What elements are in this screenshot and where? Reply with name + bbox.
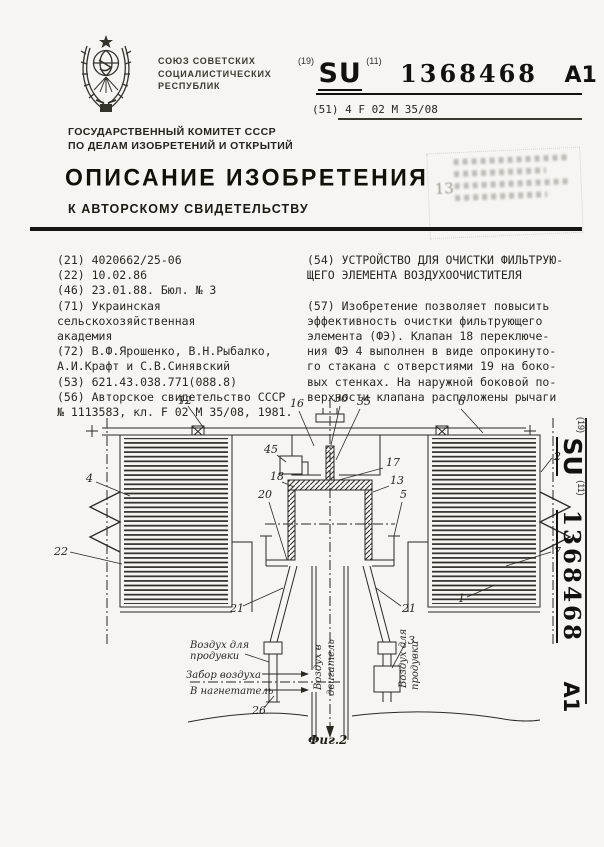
part-label-4: 4 (85, 472, 93, 485)
annotation-engine-air-1: Воздух в (313, 644, 324, 691)
annotation-right-blow-2: продувки (410, 641, 421, 690)
stamp-smudge-line (454, 167, 546, 177)
stamp-smudge-line (453, 154, 569, 165)
ussr-emblem (74, 32, 138, 120)
country-code-label: (19) (298, 56, 314, 66)
spring-left (90, 492, 120, 552)
kind-code: A1 (564, 63, 596, 88)
annotation-intake: Забор воздуха (186, 670, 261, 681)
kind-code: A1 (559, 682, 583, 713)
part-label-12: 12 (178, 394, 192, 407)
annotation-blow-air-2: продувки (190, 651, 239, 662)
part-label-6: 6 (458, 395, 465, 408)
ipc-underline (338, 118, 582, 120)
filter-element-left (120, 435, 252, 612)
publication-number-top: (19) SU (11) 1368468 A1 (298, 56, 597, 89)
patent-figure: 12 16 36 35 6 2 4 45 17 18 20 13 5 22 7 … (40, 390, 580, 760)
figure-caption: Фиг.2 (308, 733, 347, 747)
publication-number-side: (19) SU (11) 1368468 A1 (553, 417, 587, 717)
page-trim-line (585, 418, 587, 704)
part-label-21-left: 21 (229, 602, 244, 615)
doc-number: 1368468 (556, 510, 585, 643)
patent-page: СОЮЗ СОВЕТСКИХ СОЦИАЛИСТИЧЕСКИХ РЕСПУБЛИ… (0, 0, 604, 847)
part-label-36: 36 (334, 392, 348, 405)
country-code: SU (556, 437, 587, 475)
doc-number-label: (11) (366, 56, 381, 66)
part-label-45: 45 (263, 443, 278, 456)
filter-element-right (408, 435, 540, 612)
part-label-22: 22 (53, 545, 68, 558)
doc-number: 1368468 (400, 59, 538, 88)
union-name: СОЮЗ СОВЕТСКИХ СОЦИАЛИСТИЧЕСКИХ РЕСПУБЛИ… (158, 55, 272, 93)
document-title: ОПИСАНИЕ ИЗОБРЕТЕНИЯ (65, 163, 428, 191)
annotation-blow-air-1: Воздух для (189, 640, 249, 651)
document-subtitle: К АВТОРСКОМУ СВИДЕТЕЛЬСТВУ (68, 202, 309, 216)
annotation-engine-air-2: двигатель (326, 639, 337, 696)
biblio-right-column: (54) УСТРОЙСТВО ДЛЯ ОЧИСТКИ ФИЛЬТРУЮ- ЩЕ… (307, 253, 569, 405)
part-label-1: 1 (458, 592, 465, 605)
stamp-number: 13 (434, 179, 454, 198)
header-rule (30, 227, 582, 231)
stamp-smudge-line (455, 191, 547, 201)
library-stamp: 13 (426, 147, 584, 240)
part-label-21-right: 21 (401, 602, 416, 615)
country-code: SU (318, 58, 361, 91)
pub-underline (316, 93, 582, 95)
part-label-18: 18 (270, 470, 284, 483)
part-label-35: 35 (357, 395, 371, 408)
part-label-20: 20 (257, 488, 272, 501)
part-label-17: 17 (386, 456, 400, 469)
stamp-smudge-line (455, 178, 571, 189)
part-label-13: 13 (390, 474, 404, 487)
part-label-5: 5 (400, 488, 407, 501)
annotation-supercharger: В нагнетатель (189, 686, 273, 697)
ipc-classification: (51) 4 F 02 M 35/08 (312, 103, 438, 116)
committee-name: ГОСУДАРСТВЕННЫЙ КОМИТЕТ СССР ПО ДЕЛАМ ИЗ… (68, 126, 293, 153)
annotation-right-blow-1: Воздух для (398, 629, 409, 689)
part-label-16: 16 (290, 397, 304, 410)
star-icon (99, 35, 113, 48)
part-label-26: 26 (251, 704, 266, 717)
